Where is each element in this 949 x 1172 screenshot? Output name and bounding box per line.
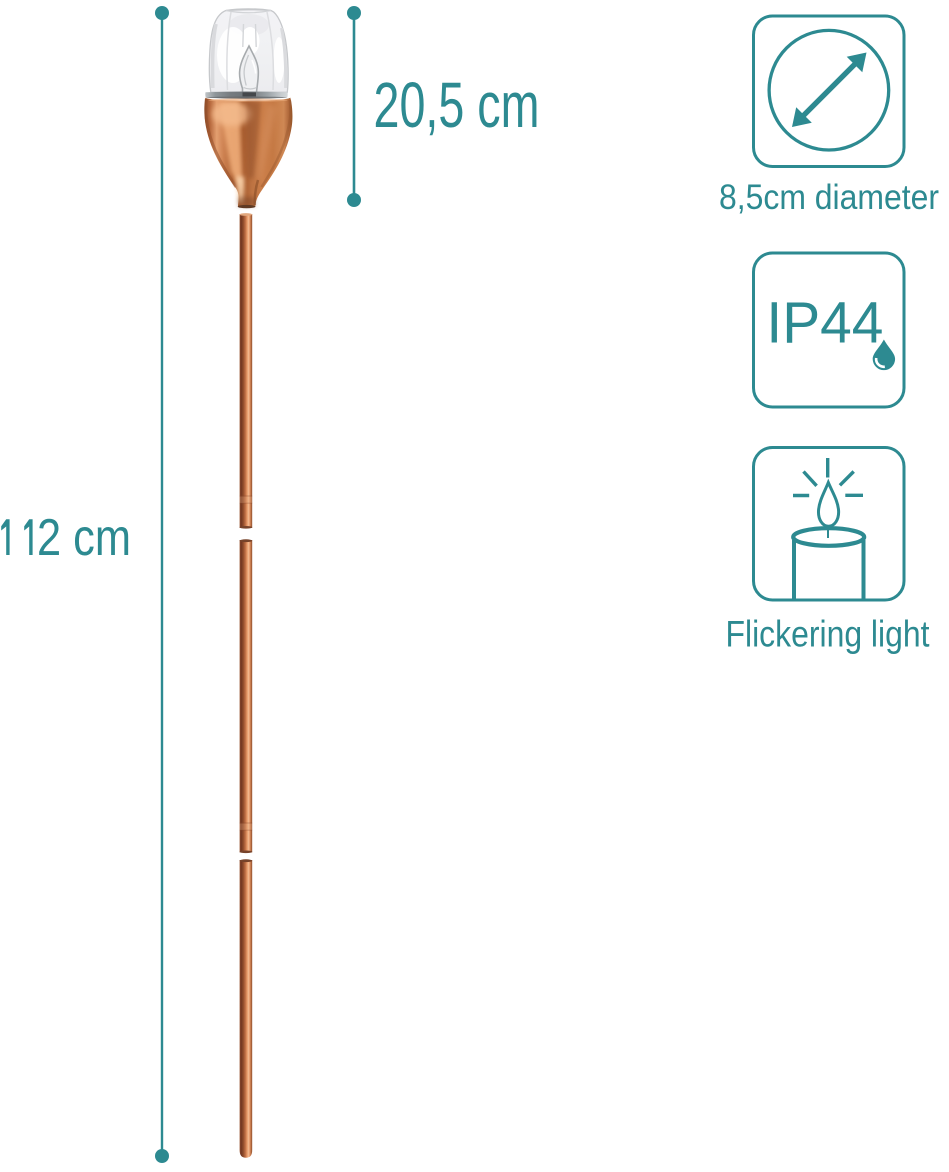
svg-text:8,5cm diameter: 8,5cm diameter (719, 178, 939, 217)
svg-text:Flickering light: Flickering light (726, 614, 931, 655)
svg-text:2 cm: 2 cm (37, 509, 131, 567)
svg-text:IP44: IP44 (766, 291, 883, 356)
svg-text:20,5 cm: 20,5 cm (374, 69, 540, 141)
